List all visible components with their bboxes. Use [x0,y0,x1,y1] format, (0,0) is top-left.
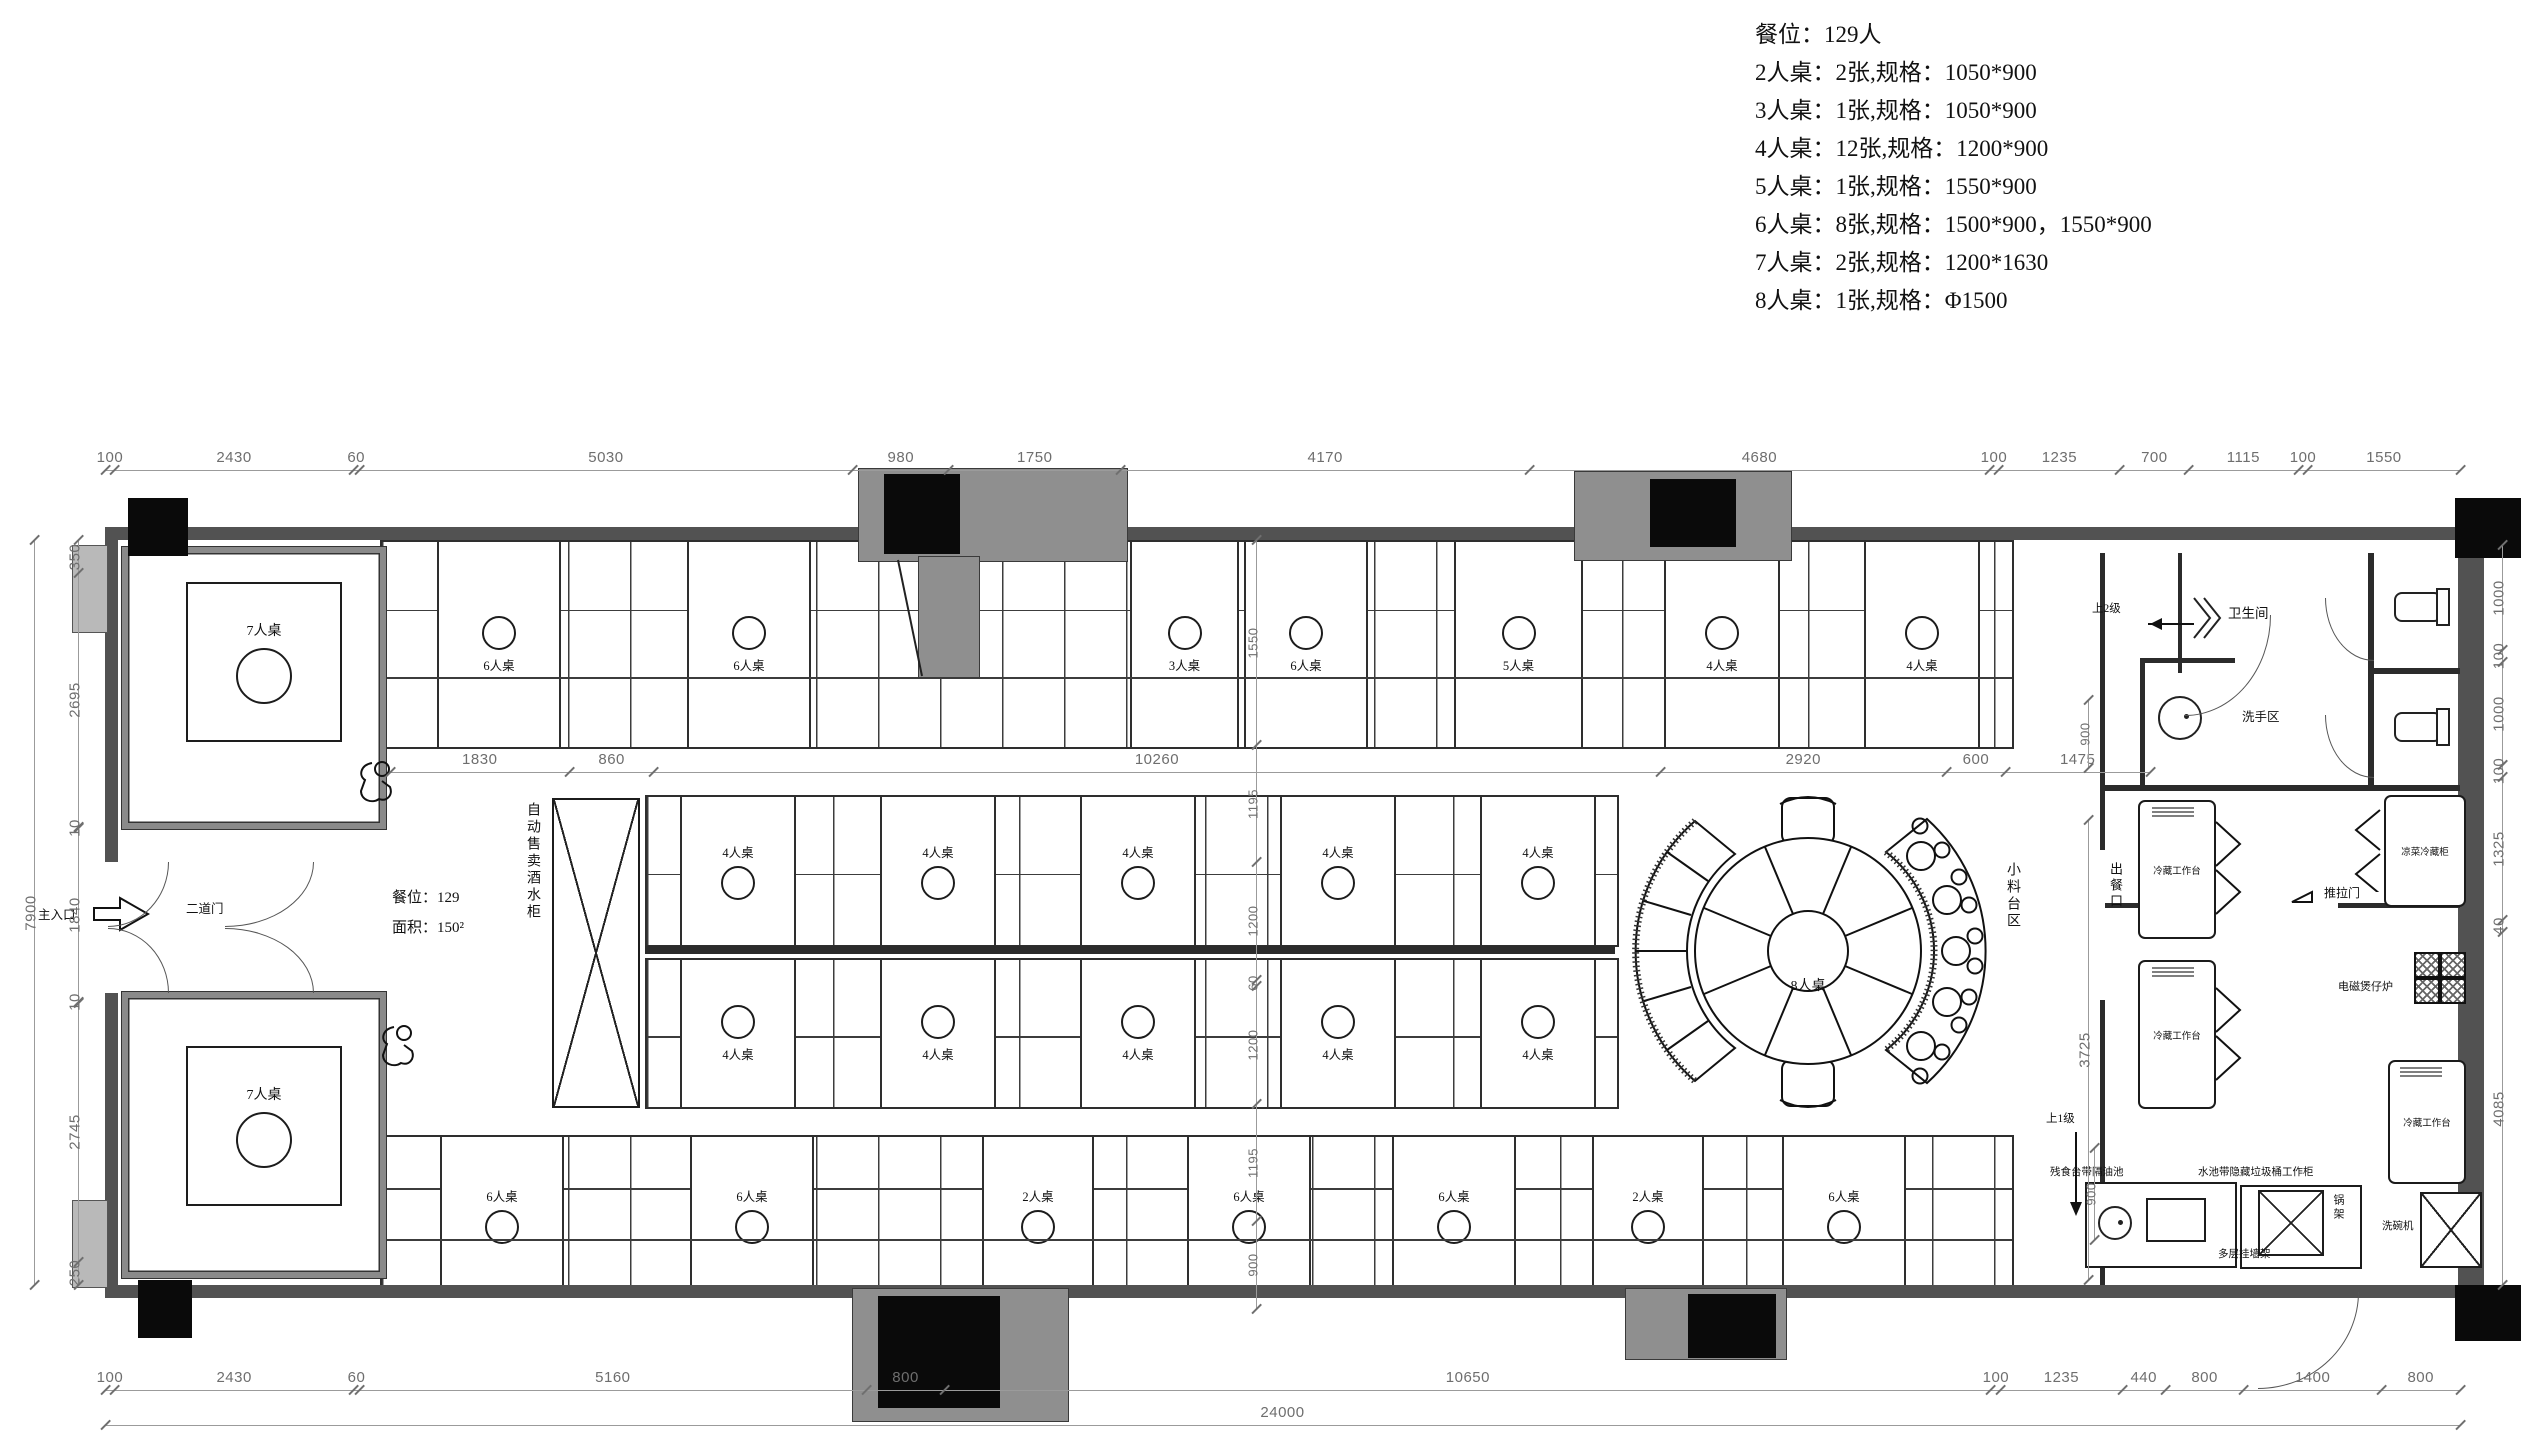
cold-worktable-label: 冷藏工作台 [2403,1115,2451,1129]
coil-icon [2150,804,2200,820]
dimension-label: 100 [2290,449,2317,466]
sink-cabinet-label: 水池带隐藏垃圾桶工作柜 [2198,1164,2314,1179]
stairs-chevron-icon [2192,596,2222,642]
table-circle [721,866,755,900]
table-circle [1827,1210,1861,1244]
legend-row: 3人桌：1张,规格：1050*900 [1755,92,2395,130]
room-1-table: 7人桌 [186,582,342,742]
dimension-label: 2920 [1786,751,1821,768]
column [1650,479,1736,547]
table-label: 4人桌 [1322,842,1353,861]
wash-area-label: 洗手区 [2242,706,2280,725]
stove-burner-icon [2414,978,2440,1004]
pot-rack-label: 锅架 [2330,1194,2346,1254]
dimension-label: 250 [67,1260,84,1287]
dishwasher-label: 洗碗机 [2382,1218,2414,1233]
down-arrow-icon [2068,1130,2084,1218]
toilet-icon [2394,712,2442,742]
dimension-line [105,1425,2460,1426]
dimension-label: 1195 [1246,789,1261,819]
table-circle [1437,1210,1471,1244]
table-label: 4人桌 [1522,1044,1553,1063]
table-circle [1289,616,1323,650]
table-cell: 4人桌 [1664,542,1780,747]
table-cell: 4人桌 [1080,960,1196,1107]
table-circle [1705,616,1739,650]
vending-cabinet-label: 自动售卖酒水柜 [522,802,542,1102]
entrance-door-arc [108,862,169,927]
dimension-label: 10650 [1446,1369,1490,1386]
second-door-arc [225,862,314,927]
table-label: 6人桌 [736,1186,767,1205]
stove-burner-icon [2440,952,2466,978]
legend-row: 6人桌：8张,规格：1500*900，1550*900 [1755,206,2395,244]
table-label: 7人桌 [247,620,282,640]
serving-window-label: 出餐口 [2106,862,2125,972]
dimension-label: 10 [67,993,84,1011]
right-wall [2458,540,2484,1298]
table-circle [721,1005,755,1039]
table-circle [921,1005,955,1039]
table-label: 4人桌 [1322,1044,1353,1063]
dimension-label: 4680 [1742,449,1777,466]
dimension-label: 2695 [67,682,84,717]
table-cell: 6人桌 [1244,542,1368,747]
table-cell: 6人桌 [1392,1137,1516,1292]
table-label: 5人桌 [1503,655,1534,674]
dimension-label: 1550 [1246,627,1261,658]
dimension-label: 440 [2130,1369,2157,1386]
up-2-steps-label: 上2级 [2092,600,2121,616]
dimension-label: 1325 [2491,831,2508,866]
dimension-label: 1200 [1246,906,1261,937]
table-circle [485,1210,519,1244]
table-cell: 6人桌 [437,542,561,747]
cold-worktable-1: 冷藏工作台 [2138,800,2216,939]
table-cell: 4人桌 [1080,797,1196,945]
dimension-label: 1000 [2491,696,2508,731]
entrance-door-arc [108,928,169,993]
dimension-label: 24000 [1260,1404,1304,1421]
top-wall [105,527,2462,540]
vending-cabinet [552,798,640,1108]
table-circle [1521,866,1555,900]
table-circle [735,1210,769,1244]
toilet-tank-icon [2436,588,2450,626]
left-arrow-icon [2140,616,2196,632]
dimension-label: 100 [97,449,124,466]
table-circle [1502,616,1536,650]
table-label: 4人桌 [1706,655,1737,674]
second-door-arc [225,928,314,993]
table-cell: 4人桌 [680,797,796,945]
dimension-label: 60 [348,1369,366,1386]
floor-plan: 餐位：129人 2人桌：2张,规格：1050*9003人桌：1张,规格：1050… [0,0,2527,1433]
dimension-label: 10260 [1135,751,1179,768]
dimension-label: 800 [2191,1369,2218,1386]
dimension-label: 1400 [2295,1369,2330,1386]
coil-icon [2398,1064,2448,1080]
room-2-table: 7人桌 [186,1046,342,1206]
table-circle [1321,866,1355,900]
stair-shaft [918,556,980,678]
table-cell: 3人桌 [1130,542,1239,747]
person-icon [352,756,398,808]
table-cell: 2人桌 [982,1137,1094,1292]
table-label: 6人桌 [733,655,764,674]
dimension-label: 2430 [216,449,251,466]
door-swing-icon [2214,986,2244,1082]
table-label: 6人桌 [1290,655,1321,674]
wall-rack-label: 多层挂墙架 [2218,1246,2271,1261]
service-wall-upper [2100,553,2105,850]
table-label: 6人桌 [1828,1186,1859,1205]
table-label: 4人桌 [722,1044,753,1063]
toilet-icon [2394,592,2442,622]
dimension-label: 2745 [67,1114,84,1149]
area-label: 面积：150² [392,916,464,937]
up-1-step-label: 上1级 [2046,1110,2075,1126]
cold-worktable-label: 冷藏工作台 [2153,863,2201,877]
sliding-door-icon [2290,888,2316,904]
stove-burner-icon [2440,978,2466,1004]
booth-partition [645,946,1615,954]
table-circle [1121,1005,1155,1039]
dimension-label: 3725 [2077,1032,2094,1067]
table-circle [236,1112,292,1168]
table-label: 4人桌 [1522,842,1553,861]
dimension-label: 1840 [67,897,84,932]
table-cell: 4人桌 [1480,960,1596,1107]
column [1688,1294,1776,1358]
table-circle [1121,866,1155,900]
dimension-label: 100 [2491,758,2508,785]
condiment-area-label: 小料台区 [2002,862,2022,992]
bottom-banquette-row: 6人桌6人桌2人桌6人桌6人桌2人桌6人桌 [380,1135,2014,1294]
table-circle [1521,1005,1555,1039]
table-label: 2人桌 [1022,1186,1053,1205]
legend-title: 餐位：129人 [1755,16,2395,54]
toilet-tank-icon [2436,708,2450,746]
table-cell: 6人桌 [440,1137,564,1292]
second-door-label: 二道门 [186,898,224,917]
legend-row: 8人桌：1张,规格：Φ1500 [1755,282,2395,320]
table-label: 6人桌 [483,655,514,674]
dishwasher-icon [2420,1192,2482,1268]
column [138,1280,192,1338]
dimension-label: 1750 [1017,449,1052,466]
legend-row: 7人桌：2张,规格：1200*1630 [1755,244,2395,282]
door-swing-icon [2214,820,2244,916]
dimension-label: 1830 [462,751,497,768]
column [2455,1285,2521,1341]
table-circle [1905,616,1939,650]
table-label: 4人桌 [1906,655,1937,674]
table-label: 6人桌 [1233,1186,1264,1205]
legend-row: 2人桌：2张,规格：1050*900 [1755,54,2395,92]
dimension-label: 40 [2491,917,2508,935]
legend-row: 4人桌：12张,规格：1200*900 [1755,130,2395,168]
middle-top-table-row: 4人桌4人桌4人桌4人桌4人桌 [645,795,1619,947]
dimension-label: 900 [1246,1253,1261,1276]
stall-partition [2374,668,2460,674]
middle-bottom-table-row: 4人桌4人桌4人桌4人桌4人桌 [645,958,1619,1109]
stove-burner-icon [2414,952,2440,978]
cold-worktable-2: 冷藏工作台 [2138,960,2216,1109]
dimension-line [105,470,2460,471]
top-banquette-row: 6人桌6人桌3人桌6人桌5人桌4人桌4人桌 [380,540,2014,749]
door-swing-icon [2352,808,2382,892]
round-table-group [1598,788,2068,1122]
person-icon [374,1020,420,1072]
table-circle [732,616,766,650]
cold-worktable-label: 冷藏工作台 [2153,1028,2201,1042]
legend-rows: 2人桌：2张,规格：1050*9003人桌：1张,规格：1050*9004人桌：… [1755,54,2395,320]
table-label: 4人桌 [922,1044,953,1063]
dimension-label: 60 [347,449,365,466]
bottom-wall [105,1285,2462,1298]
dimension-label: 10 [67,819,84,837]
table-cell: 6人桌 [690,1137,814,1292]
table-circle [1168,616,1202,650]
dimension-label: 350 [67,543,84,570]
dimension-label: 7900 [23,895,40,930]
dimension-label: 800 [892,1369,919,1386]
table-cell: 2人桌 [1592,1137,1704,1292]
table-circle [1232,1210,1266,1244]
dimension-label: 800 [2407,1369,2434,1386]
dimension-label: 600 [1963,751,1990,768]
seat-count-label: 餐位：129 [392,886,460,907]
dimension-label: 100 [1983,1369,2010,1386]
dimension-label: 2430 [216,1369,251,1386]
table-circle [1021,1210,1055,1244]
toilet-bottom-wall [2105,785,2460,791]
dimension-label: 900 [2084,1182,2099,1205]
table-label: 6人桌 [1438,1186,1469,1205]
table-cell: 4人桌 [1280,960,1396,1107]
table-cell: 4人桌 [1280,797,1396,945]
legend: 餐位：129人 2人桌：2张,规格：1050*9003人桌：1张,规格：1050… [1755,16,2395,320]
dimension-label: 100 [97,1369,124,1386]
table-circle [1631,1210,1665,1244]
stair-wall [2178,553,2182,673]
stove-label: 电磁煲仔炉 [2338,978,2393,994]
dimension-label: 1550 [2366,449,2401,466]
stall-door-arc [2325,598,2374,661]
table-label: 6人桌 [486,1186,517,1205]
table-cell: 5人桌 [1454,542,1583,747]
table-label: 2人桌 [1632,1186,1663,1205]
table-cell: 6人桌 [1782,1137,1906,1292]
equipment-box [2146,1198,2206,1242]
dimension-label: 860 [598,751,625,768]
table-cell: 4人桌 [880,960,996,1107]
dimension-label: 1235 [2042,449,2077,466]
dimension-label: 5160 [595,1369,630,1386]
round-table-label: 8人桌 [1791,975,1826,995]
dimension-label: 1200 [1246,1030,1261,1061]
dimension-label: 60 [1246,975,1261,990]
table-cell: 6人桌 [687,542,811,747]
table-label: 3人桌 [1169,655,1200,674]
column [128,498,188,556]
stall-door-arc [2325,715,2374,778]
dimension-label: 5030 [588,449,623,466]
dimension-label: 1195 [1246,1148,1261,1178]
table-cell: 4人桌 [880,797,996,945]
table-cell: 4人桌 [1864,542,1980,747]
dimension-label: 100 [2491,643,2508,670]
dimension-label: 700 [2141,449,2168,466]
table-label: 4人桌 [1122,1044,1153,1063]
sliding-door-label: 推拉门 [2324,884,2360,901]
dimension-label: 4170 [1307,449,1342,466]
dimension-label: 1000 [2491,580,2508,615]
column [884,474,960,554]
cold-dish-cabinet: 凉菜冷藏柜 [2384,795,2466,907]
table-circle [921,866,955,900]
legend-row: 5人桌：1张,规格：1550*900 [1755,168,2395,206]
dimension-line [105,1390,2460,1391]
wash-wall-v [2140,658,2145,785]
dimension-label: 100 [1981,449,2008,466]
dimension-label: 980 [888,449,915,466]
dimension-label: 4085 [2491,1091,2508,1126]
table-cell: 4人桌 [680,960,796,1107]
coil-icon [2150,964,2200,980]
table-label: 4人桌 [722,842,753,861]
cold-dish-cabinet-label: 凉菜冷藏柜 [2401,844,2449,858]
table-cell: 4人桌 [1480,797,1596,945]
table-circle [236,648,292,704]
column [2455,498,2521,558]
table-label: 4人桌 [1122,842,1153,861]
stair-diagonal [896,558,924,678]
table-circle [1321,1005,1355,1039]
table-label: 4人桌 [922,842,953,861]
table-label: 7人桌 [247,1084,282,1104]
table-circle [482,616,516,650]
dimension-label: 1115 [2227,449,2260,466]
round-sink-icon [2098,1206,2132,1240]
dimension-label: 900 [2078,722,2093,745]
dimension-label: 1235 [2044,1369,2079,1386]
waste-table-label: 残食台带隔油池 [2050,1164,2124,1179]
